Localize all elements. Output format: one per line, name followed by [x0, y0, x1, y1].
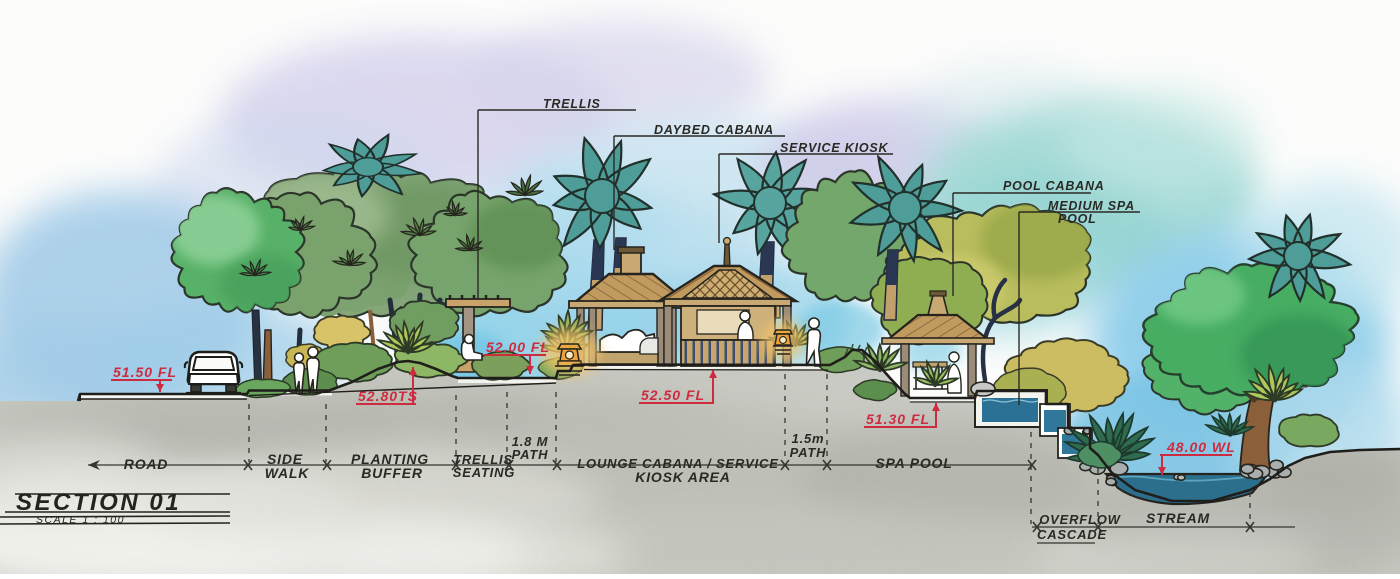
svg-text:OVERFLOW: OVERFLOW: [1039, 512, 1121, 527]
svg-text:51.30 FL: 51.30 FL: [866, 411, 930, 427]
svg-text:52.80TS: 52.80TS: [358, 388, 418, 404]
svg-text:PATH: PATH: [790, 445, 827, 460]
svg-text:SERVICE KIOSK: SERVICE KIOSK: [780, 141, 889, 155]
svg-text:52.00 FL: 52.00 FL: [486, 339, 550, 355]
svg-text:DAYBED CABANA: DAYBED CABANA: [654, 123, 774, 137]
svg-text:SPA POOL: SPA POOL: [875, 455, 952, 471]
svg-text:SEATING: SEATING: [453, 465, 515, 480]
svg-text:STREAM: STREAM: [1146, 510, 1210, 526]
svg-text:SCALE 1 : 100: SCALE 1 : 100: [36, 514, 125, 526]
svg-text:CASCADE: CASCADE: [1037, 527, 1107, 542]
svg-text:POOL CABANA: POOL CABANA: [1003, 179, 1105, 193]
svg-text:WALK: WALK: [265, 465, 310, 481]
svg-text:MEDIUM SPA: MEDIUM SPA: [1048, 199, 1135, 213]
svg-text:BUFFER: BUFFER: [361, 465, 423, 481]
svg-text:SECTION 01: SECTION 01: [16, 489, 181, 516]
svg-text:POOL: POOL: [1058, 212, 1097, 226]
svg-text:ROAD: ROAD: [124, 456, 168, 472]
svg-text:48.00 WL: 48.00 WL: [1166, 439, 1236, 455]
svg-text:1.5m: 1.5m: [792, 431, 825, 446]
svg-text:KIOSK AREA: KIOSK AREA: [635, 469, 730, 485]
svg-text:PATH: PATH: [512, 447, 549, 462]
svg-text:51.50 FL: 51.50 FL: [113, 364, 177, 380]
svg-text:52.50 FL: 52.50 FL: [641, 387, 705, 403]
svg-text:TRELLIS: TRELLIS: [543, 97, 601, 111]
